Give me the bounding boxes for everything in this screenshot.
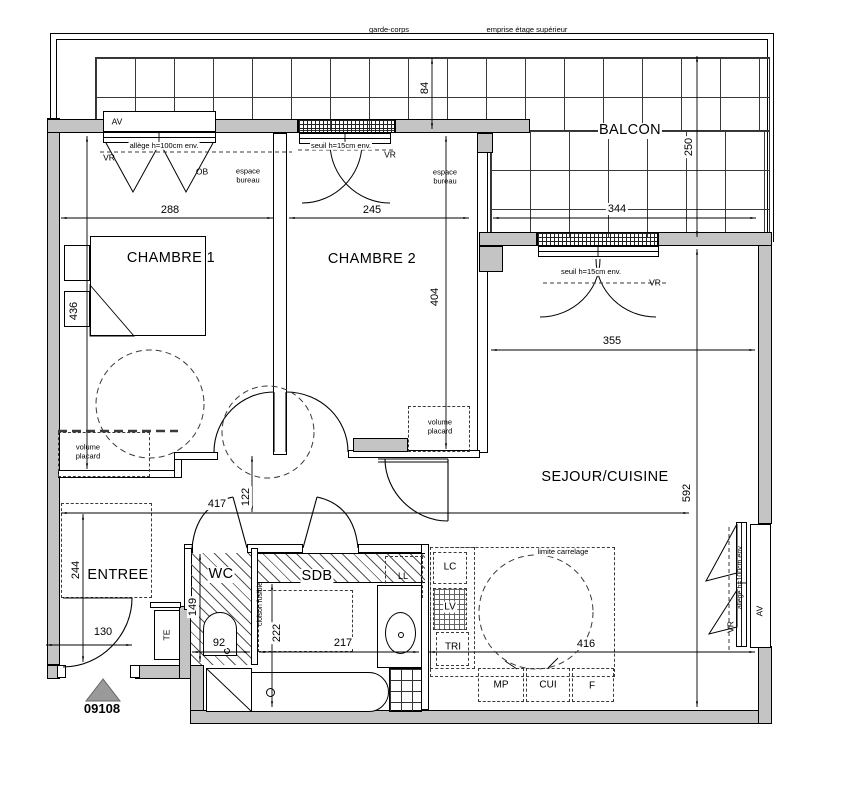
wall-right-upper [758,240,772,524]
floor-plan: garde-corps emprise étage supérieur BALC… [0,0,860,800]
dim-chambre1-depth: 436 [68,300,80,322]
window-sejour-av-box [750,524,771,648]
tri-label: TRI [445,642,461,653]
dim-balcon-width: 344 [606,203,628,215]
te-label: TE [162,630,171,641]
dim-entree-door: 130 [92,626,114,638]
wall-chambre-partition [273,133,287,455]
wall-left [47,118,60,665]
wall-bottom [190,710,772,724]
f-label: F [589,681,595,692]
shower-unit [206,668,252,712]
wall-top-b [215,119,298,133]
dim-chambre2-depth: 404 [429,286,441,308]
mp-label: MP [494,680,509,691]
volume-placard-label-right: volume placard [417,418,463,435]
allege-label-chambre1: allège h=100cm env. [129,142,200,150]
av-label-sejour-window: AV [755,606,764,617]
wall-post-sejour [479,246,503,272]
vr-label-chambre1: VR [103,153,115,162]
volume-placard-label-left: volume placard [65,443,111,460]
seuil-label-sejour: seuil h=15cm env. [560,268,622,276]
plan-number: 09108 [84,702,120,716]
basin-drain-dot [398,632,404,638]
dim-wc-depth: 149 [187,596,199,618]
dim-sdb-width: 217 [332,637,354,649]
dim-entree-depth: 244 [70,559,82,581]
emprise-label: emprise étage supérieur [487,26,568,34]
dim-balcon-strip: 84 [419,80,431,96]
entrance-triangle-icon [86,679,120,701]
dim-wc-width: 92 [211,637,227,649]
vr-label-chambre2: VR [384,150,396,159]
dim-chambre2-width: 245 [361,204,383,216]
allege-label-sejour-window: allège h=100cm env. [737,545,745,609]
lc-label: LC [444,562,457,573]
bathtub-drain [266,688,275,697]
cui-label: CUI [539,680,556,691]
entry-door-post-left [57,665,66,678]
entry-door-post-right [130,665,140,678]
room-label-sejour: SEJOUR/CUISINE [541,470,668,486]
espace-bureau-label-chambre2: espace bureau [422,168,468,185]
dim-balcon-depth: 250 [683,136,695,158]
dim-cuisine-width: 416 [575,638,597,650]
balcony-tile-floor [490,130,770,238]
room-label-balcon: BALCON [598,123,662,139]
dim-sejour-width: 355 [601,335,623,347]
window-chambre2-roller [298,119,395,133]
wall-balcony-south-a [479,232,537,246]
limite-carrelage-label: limite carrelage [537,548,590,556]
sliding-panel-chambre2 [353,438,408,452]
cloison-fusible-label: cloison fusible [257,582,265,626]
wall-corridor-c [358,544,429,553]
room-label-sdb: SDB [300,569,333,585]
toilet [203,612,237,656]
seuil-label-chambre2: seuil h=15cm env. [310,142,372,150]
wall-te-top [150,602,181,608]
room-label-chambre2: CHAMBRE 2 [328,252,416,268]
wall-chambre1-south-b [174,452,218,460]
garde-corps-label: garde-corps [369,26,409,34]
wall-top-a [47,119,104,133]
wall-balcony-south-b [658,232,772,246]
wall-balcony-post-top [477,133,493,153]
vr-label-sejour-window: VR [726,621,735,633]
dim-chambre1-width: 288 [159,204,181,216]
wall-right-lower [758,646,772,724]
dim-hall-length: 417 [206,498,228,510]
room-label-entree: ENTREE [87,568,148,584]
window-balcony-glazing [538,246,659,257]
nightstand-top [64,245,90,281]
dim-hall-width: 122 [240,486,252,508]
room-label-wc: WC [208,567,235,583]
av-label-chambre1: AV [112,117,123,126]
dim-sdb-depth: 222 [271,622,283,644]
tiled-shelf [389,668,422,712]
dim-sejour-depth: 592 [681,482,693,504]
room-label-chambre1: CHAMBRE 1 [127,251,215,267]
ob-label-chambre1: OB [196,167,208,176]
espace-bureau-label-chambre1: espace bureau [225,167,271,184]
wall-chambre2-east [477,133,488,453]
lv-label: LV [443,602,457,613]
ll-label: LL [398,572,408,582]
window-balcony-roller [537,232,658,246]
vr-label-sejour: VR [649,278,661,287]
wall-top-c [395,119,530,133]
